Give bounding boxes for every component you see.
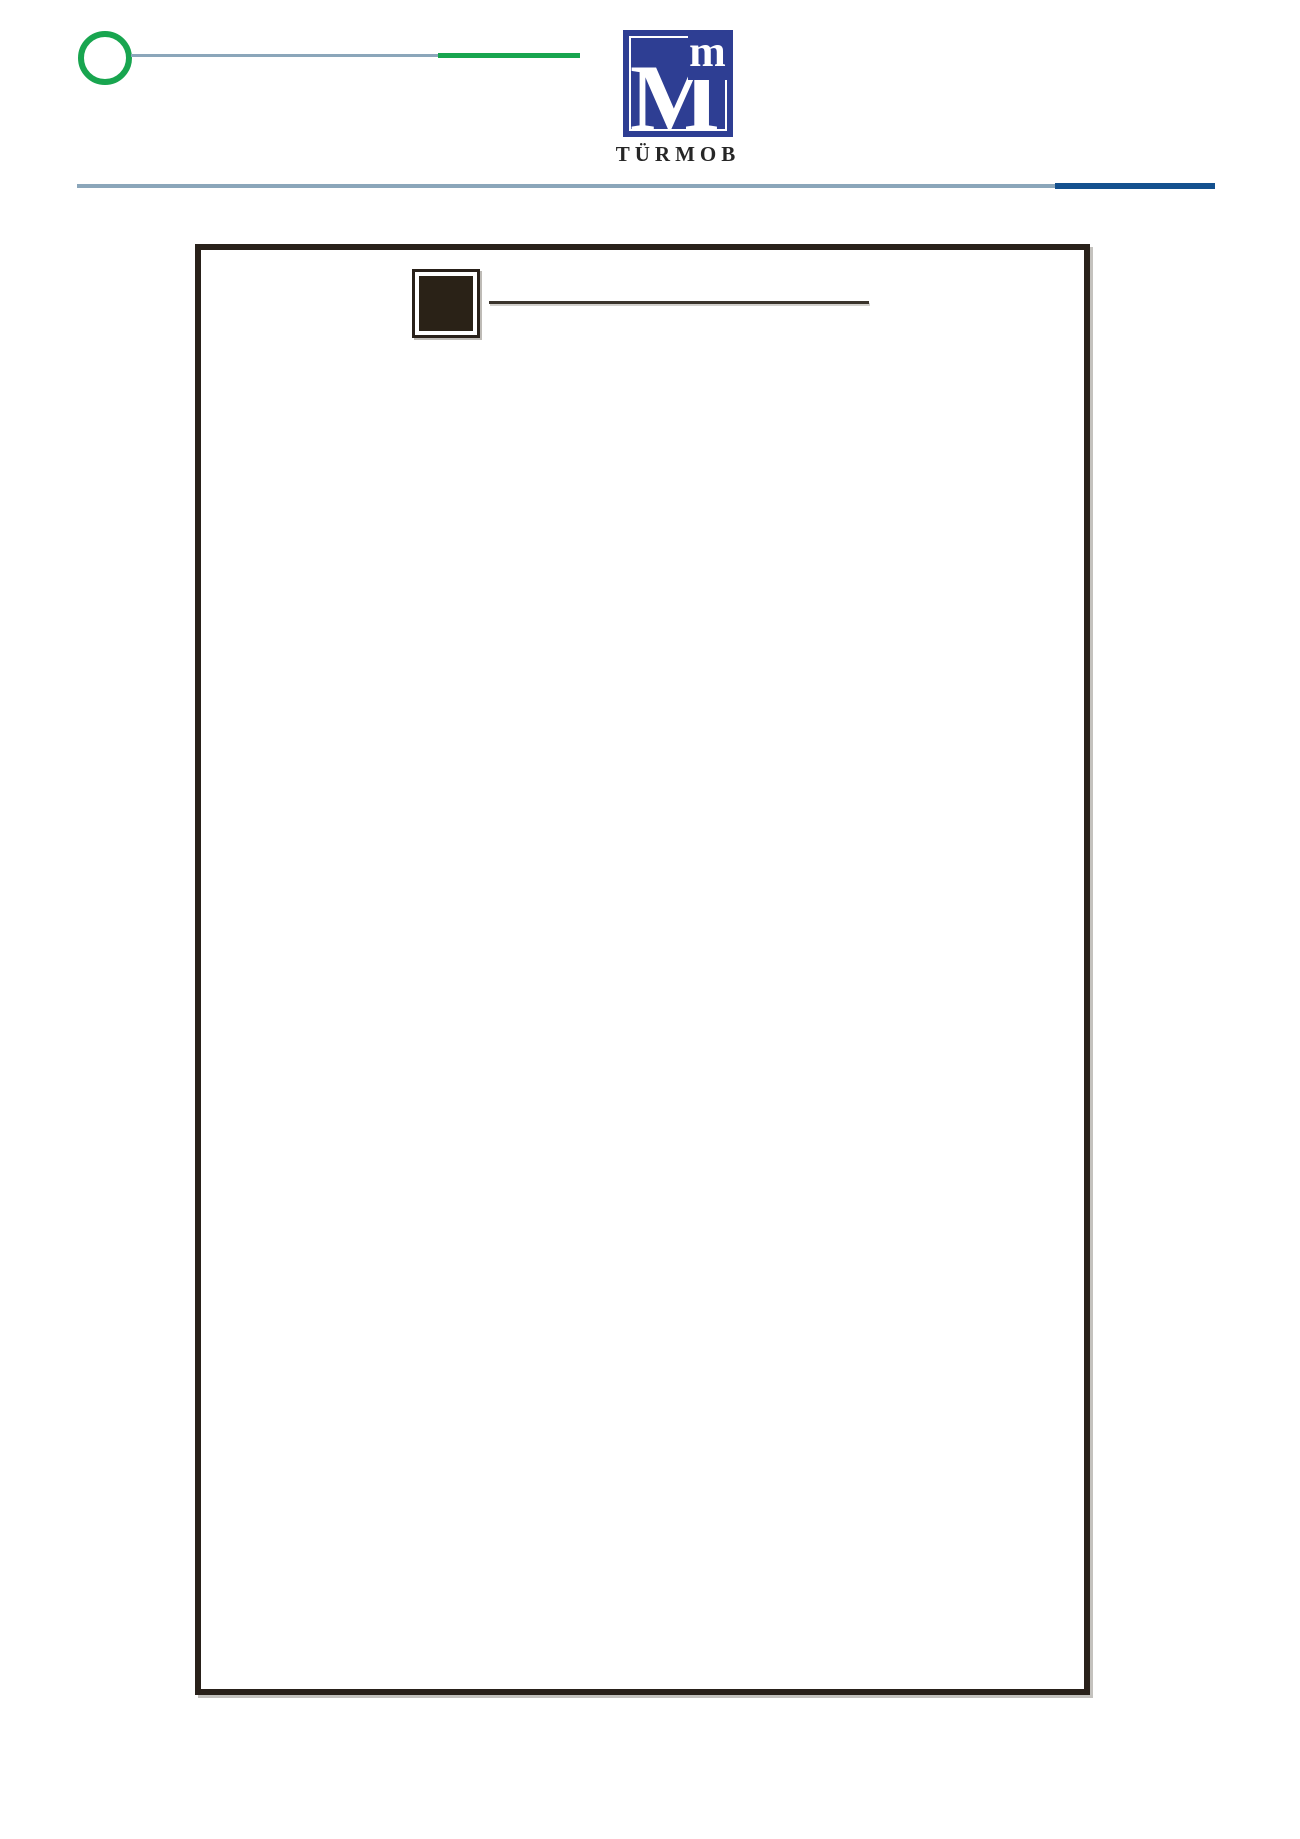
logo-brand-name: TÜRMOB [611, 142, 745, 167]
content-frame [195, 244, 1090, 1695]
document-page: M m TÜRMOB [0, 0, 1300, 1839]
section-bullet-square [412, 269, 480, 338]
logo-small-m-patch: m [688, 33, 727, 80]
header-divider-navy-accent [1055, 183, 1215, 189]
header-green-accent-line [438, 53, 580, 58]
section-title-rule [489, 301, 869, 304]
header-divider-line [77, 184, 1055, 188]
green-circle-decoration [78, 31, 132, 85]
turmob-logo: M m [623, 30, 733, 137]
section-bullet-fill [419, 276, 473, 331]
logo-letter-m: m [689, 33, 726, 71]
header-connector-line [131, 54, 438, 57]
